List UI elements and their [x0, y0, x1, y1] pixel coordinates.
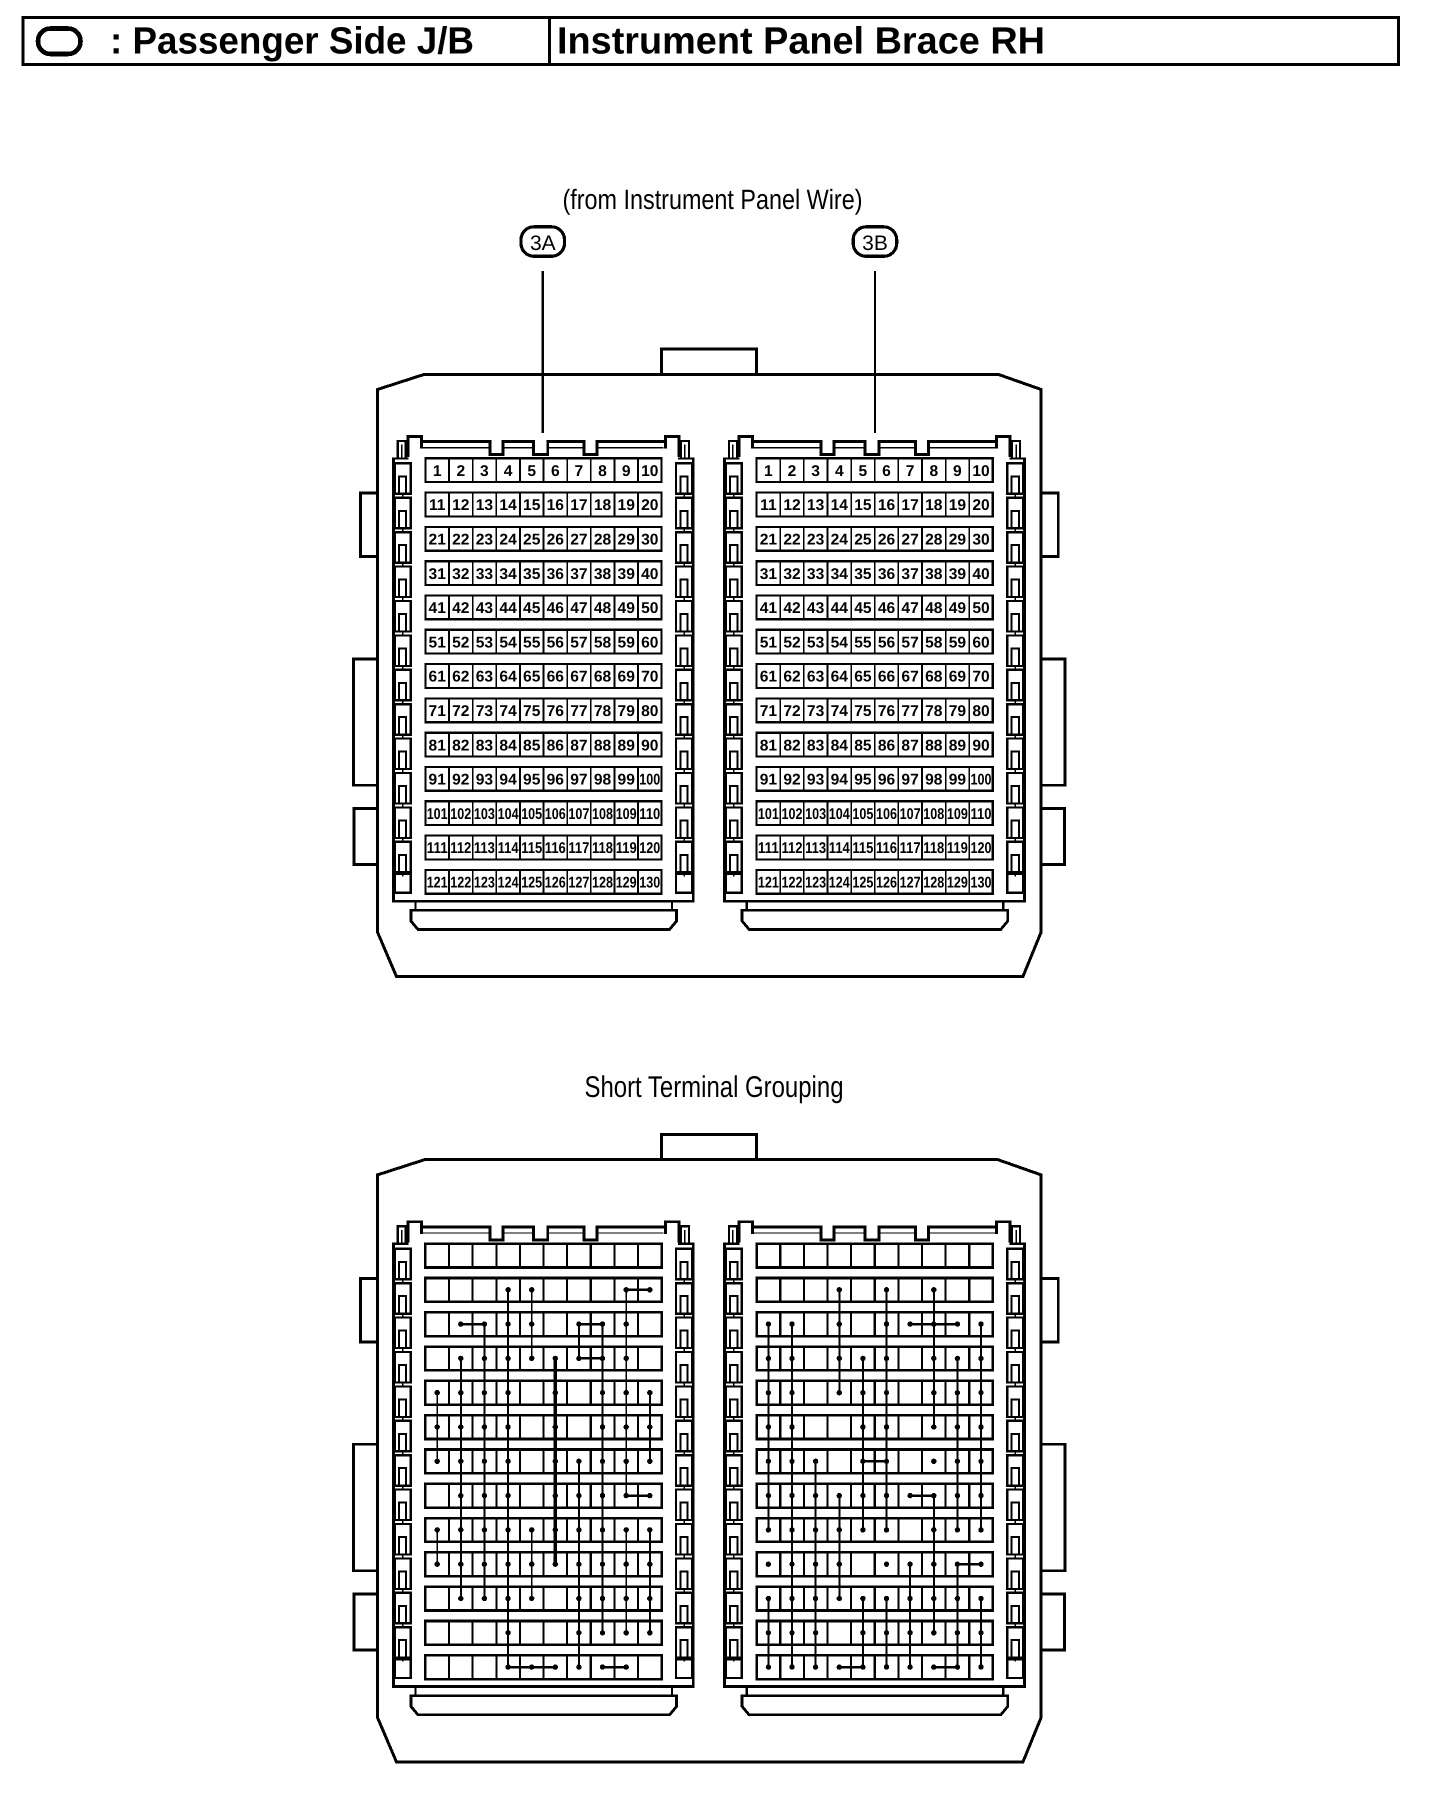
svg-text:109: 109 [947, 806, 968, 823]
svg-text:75: 75 [854, 703, 872, 720]
svg-text:46: 46 [878, 600, 896, 617]
svg-text:82: 82 [452, 737, 470, 754]
svg-text:81: 81 [429, 737, 447, 754]
svg-text:80: 80 [972, 703, 990, 720]
svg-text:49: 49 [949, 600, 967, 617]
svg-text:9: 9 [953, 463, 962, 480]
svg-text:55: 55 [854, 634, 872, 651]
svg-text:65: 65 [523, 669, 541, 686]
svg-text:94: 94 [499, 772, 517, 789]
svg-text:22: 22 [452, 532, 470, 549]
svg-text:30: 30 [972, 532, 990, 549]
svg-text:111: 111 [427, 840, 448, 857]
svg-text:83: 83 [807, 737, 825, 754]
svg-text:69: 69 [618, 669, 636, 686]
svg-text:71: 71 [760, 703, 778, 720]
svg-text:43: 43 [807, 600, 825, 617]
svg-text:82: 82 [783, 737, 801, 754]
svg-text:36: 36 [547, 566, 565, 583]
svg-text:32: 32 [452, 566, 470, 583]
svg-text:23: 23 [807, 532, 825, 549]
svg-text:31: 31 [429, 566, 447, 583]
svg-text:23: 23 [476, 532, 494, 549]
svg-text:50: 50 [972, 600, 990, 617]
svg-text:66: 66 [547, 669, 565, 686]
svg-text:13: 13 [476, 497, 494, 514]
svg-text:66: 66 [878, 669, 896, 686]
svg-text:62: 62 [783, 669, 801, 686]
svg-text:11: 11 [760, 497, 777, 514]
svg-text:88: 88 [594, 737, 612, 754]
svg-text:77: 77 [570, 703, 587, 720]
svg-text:79: 79 [618, 703, 636, 720]
svg-text:120: 120 [971, 840, 992, 857]
svg-text:98: 98 [594, 772, 612, 789]
svg-text:45: 45 [854, 600, 872, 617]
svg-text:40: 40 [641, 566, 659, 583]
svg-text:120: 120 [639, 840, 660, 857]
svg-text:70: 70 [641, 669, 659, 686]
svg-text:18: 18 [925, 497, 943, 514]
svg-text:96: 96 [878, 772, 896, 789]
svg-text:77: 77 [901, 703, 918, 720]
svg-text:67: 67 [901, 669, 918, 686]
svg-text:2: 2 [788, 463, 797, 480]
svg-text:100: 100 [639, 772, 660, 789]
svg-text:103: 103 [805, 806, 826, 823]
svg-text:67: 67 [570, 669, 587, 686]
svg-text:117: 117 [900, 840, 921, 857]
svg-text:25: 25 [523, 532, 541, 549]
svg-text:73: 73 [476, 703, 494, 720]
svg-text:128: 128 [592, 875, 613, 892]
svg-text:15: 15 [523, 497, 541, 514]
svg-text:22: 22 [783, 532, 801, 549]
svg-text:125: 125 [852, 875, 873, 892]
svg-text:Instrument Panel Brace RH: Instrument Panel Brace RH [557, 21, 1045, 63]
svg-text:39: 39 [618, 566, 636, 583]
svg-text:19: 19 [618, 497, 636, 514]
svg-text:55: 55 [523, 634, 541, 651]
svg-text:56: 56 [878, 634, 896, 651]
svg-text:123: 123 [805, 875, 826, 892]
svg-text:56: 56 [547, 634, 565, 651]
svg-text:54: 54 [831, 634, 849, 651]
svg-text:16: 16 [547, 497, 565, 514]
svg-text:2: 2 [456, 463, 465, 480]
svg-text:83: 83 [476, 737, 494, 754]
svg-text:103: 103 [474, 806, 495, 823]
svg-text:64: 64 [831, 669, 849, 686]
svg-text:26: 26 [547, 532, 565, 549]
svg-text:Short Terminal Grouping: Short Terminal Grouping [585, 1071, 844, 1104]
svg-text:116: 116 [876, 840, 897, 857]
svg-text:8: 8 [598, 463, 607, 480]
svg-text:122: 122 [782, 875, 803, 892]
svg-text:41: 41 [760, 600, 778, 617]
svg-text:48: 48 [594, 600, 612, 617]
svg-text:84: 84 [831, 737, 849, 754]
svg-text:128: 128 [923, 875, 944, 892]
svg-text:37: 37 [570, 566, 587, 583]
svg-text:126: 126 [876, 875, 897, 892]
svg-text:89: 89 [949, 737, 967, 754]
svg-text:(from Instrument Panel Wire): (from Instrument Panel Wire) [563, 184, 863, 215]
svg-text:118: 118 [592, 840, 613, 857]
svg-text:18: 18 [594, 497, 612, 514]
svg-text:114: 114 [498, 840, 519, 857]
svg-text:123: 123 [474, 875, 495, 892]
svg-text:28: 28 [594, 532, 612, 549]
svg-text:85: 85 [523, 737, 541, 754]
svg-text:71: 71 [429, 703, 447, 720]
svg-text:97: 97 [901, 772, 918, 789]
svg-text:3: 3 [811, 463, 820, 480]
svg-text:53: 53 [807, 634, 825, 651]
svg-text:31: 31 [760, 566, 778, 583]
svg-text:92: 92 [452, 772, 470, 789]
svg-text:8: 8 [929, 463, 938, 480]
svg-text:87: 87 [570, 737, 587, 754]
svg-text:68: 68 [594, 669, 612, 686]
svg-text:105: 105 [852, 806, 873, 823]
svg-text:24: 24 [499, 532, 517, 549]
svg-text:54: 54 [499, 634, 517, 651]
svg-text:101: 101 [427, 806, 448, 823]
svg-text:126: 126 [545, 875, 566, 892]
svg-text:80: 80 [641, 703, 659, 720]
svg-text:4: 4 [835, 463, 844, 480]
svg-text:102: 102 [450, 806, 471, 823]
svg-text:35: 35 [523, 566, 541, 583]
svg-text:129: 129 [616, 875, 637, 892]
svg-text:47: 47 [901, 600, 918, 617]
svg-text:29: 29 [618, 532, 636, 549]
svg-text:97: 97 [570, 772, 587, 789]
svg-text:86: 86 [878, 737, 896, 754]
svg-text:21: 21 [429, 532, 447, 549]
svg-text:108: 108 [923, 806, 944, 823]
svg-text:33: 33 [476, 566, 494, 583]
svg-text:10: 10 [972, 463, 990, 480]
svg-text:121: 121 [427, 875, 448, 892]
svg-text:90: 90 [641, 737, 659, 754]
svg-text:10: 10 [641, 463, 659, 480]
svg-text:95: 95 [523, 772, 541, 789]
svg-text:58: 58 [594, 634, 612, 651]
svg-text:110: 110 [639, 806, 660, 823]
svg-text:110: 110 [971, 806, 992, 823]
svg-text:115: 115 [521, 840, 542, 857]
svg-text:36: 36 [878, 566, 896, 583]
svg-text:13: 13 [807, 497, 825, 514]
svg-text:114: 114 [829, 840, 850, 857]
svg-text:20: 20 [641, 497, 659, 514]
svg-text:99: 99 [618, 772, 636, 789]
svg-text:27: 27 [901, 532, 918, 549]
svg-text:4: 4 [504, 463, 513, 480]
svg-text:53: 53 [476, 634, 494, 651]
svg-text:12: 12 [452, 497, 470, 514]
svg-text:3: 3 [480, 463, 489, 480]
svg-text:25: 25 [854, 532, 872, 549]
svg-text:60: 60 [641, 634, 659, 651]
svg-text:68: 68 [925, 669, 943, 686]
svg-text:15: 15 [854, 497, 872, 514]
svg-text:125: 125 [521, 875, 542, 892]
svg-text:104: 104 [829, 806, 850, 823]
svg-text:116: 116 [545, 840, 566, 857]
svg-text:106: 106 [876, 806, 897, 823]
svg-text:26: 26 [878, 532, 896, 549]
svg-text:119: 119 [947, 840, 968, 857]
svg-text:100: 100 [971, 772, 992, 789]
svg-text:39: 39 [949, 566, 967, 583]
svg-text:72: 72 [783, 703, 801, 720]
svg-text:93: 93 [807, 772, 825, 789]
svg-text:78: 78 [925, 703, 943, 720]
svg-text:111: 111 [758, 840, 779, 857]
svg-text:112: 112 [450, 840, 471, 857]
svg-text:85: 85 [854, 737, 872, 754]
svg-text:6: 6 [551, 463, 560, 480]
svg-text:43: 43 [476, 600, 494, 617]
svg-text:9: 9 [622, 463, 631, 480]
svg-text:24: 24 [831, 532, 849, 549]
svg-text:86: 86 [547, 737, 565, 754]
svg-text:127: 127 [568, 875, 589, 892]
svg-text:5: 5 [859, 463, 868, 480]
svg-text:72: 72 [452, 703, 470, 720]
svg-text:113: 113 [474, 840, 495, 857]
svg-text:73: 73 [807, 703, 825, 720]
svg-text:58: 58 [925, 634, 943, 651]
svg-text:91: 91 [429, 772, 447, 789]
svg-text:48: 48 [925, 600, 943, 617]
svg-text:99: 99 [949, 772, 967, 789]
svg-text:108: 108 [592, 806, 613, 823]
svg-text:84: 84 [499, 737, 517, 754]
svg-text:34: 34 [499, 566, 517, 583]
svg-text:16: 16 [878, 497, 896, 514]
svg-text:124: 124 [498, 875, 519, 892]
svg-text:76: 76 [878, 703, 896, 720]
svg-text:94: 94 [831, 772, 849, 789]
svg-text:74: 74 [499, 703, 517, 720]
svg-text:93: 93 [476, 772, 494, 789]
svg-text:69: 69 [949, 669, 967, 686]
svg-text:79: 79 [949, 703, 967, 720]
svg-text:115: 115 [852, 840, 873, 857]
svg-text:12: 12 [783, 497, 801, 514]
svg-text:34: 34 [831, 566, 849, 583]
svg-text:: Passenger Side J/B: : Passenger Side J/B [110, 21, 474, 63]
svg-text:78: 78 [594, 703, 612, 720]
svg-text:6: 6 [882, 463, 891, 480]
svg-text:44: 44 [499, 600, 517, 617]
svg-text:38: 38 [925, 566, 943, 583]
svg-text:51: 51 [429, 634, 447, 651]
svg-text:70: 70 [972, 669, 990, 686]
svg-text:1: 1 [433, 463, 442, 480]
svg-text:98: 98 [925, 772, 943, 789]
svg-text:107: 107 [900, 806, 921, 823]
svg-text:21: 21 [760, 532, 778, 549]
svg-text:101: 101 [758, 806, 779, 823]
svg-text:121: 121 [758, 875, 779, 892]
svg-text:1: 1 [764, 463, 773, 480]
svg-text:88: 88 [925, 737, 943, 754]
svg-text:107: 107 [568, 806, 589, 823]
svg-text:49: 49 [618, 600, 636, 617]
svg-text:74: 74 [831, 703, 849, 720]
svg-text:37: 37 [901, 566, 918, 583]
svg-text:40: 40 [972, 566, 990, 583]
svg-text:112: 112 [782, 840, 803, 857]
svg-text:119: 119 [616, 840, 637, 857]
svg-text:30: 30 [641, 532, 659, 549]
svg-text:20: 20 [972, 497, 990, 514]
svg-text:59: 59 [949, 634, 967, 651]
svg-text:92: 92 [783, 772, 801, 789]
svg-text:129: 129 [947, 875, 968, 892]
svg-text:63: 63 [807, 669, 825, 686]
svg-text:109: 109 [616, 806, 637, 823]
svg-text:52: 52 [783, 634, 801, 651]
svg-text:89: 89 [618, 737, 636, 754]
svg-text:61: 61 [760, 669, 778, 686]
svg-text:28: 28 [925, 532, 943, 549]
svg-text:91: 91 [760, 772, 778, 789]
svg-text:127: 127 [900, 875, 921, 892]
svg-text:117: 117 [568, 840, 589, 857]
svg-text:87: 87 [901, 737, 918, 754]
svg-text:38: 38 [594, 566, 612, 583]
svg-text:104: 104 [498, 806, 519, 823]
svg-text:57: 57 [570, 634, 587, 651]
svg-text:3A: 3A [530, 232, 556, 255]
svg-text:33: 33 [807, 566, 825, 583]
svg-text:113: 113 [805, 840, 826, 857]
svg-text:47: 47 [570, 600, 587, 617]
svg-text:76: 76 [547, 703, 565, 720]
svg-text:32: 32 [783, 566, 801, 583]
svg-text:14: 14 [499, 497, 517, 514]
svg-text:50: 50 [641, 600, 659, 617]
svg-text:124: 124 [829, 875, 850, 892]
svg-text:75: 75 [523, 703, 541, 720]
svg-text:45: 45 [523, 600, 541, 617]
svg-text:7: 7 [906, 463, 915, 480]
svg-text:42: 42 [452, 600, 470, 617]
svg-text:14: 14 [831, 497, 849, 514]
svg-text:5: 5 [527, 463, 536, 480]
svg-text:35: 35 [854, 566, 872, 583]
svg-text:59: 59 [618, 634, 636, 651]
svg-text:60: 60 [972, 634, 990, 651]
svg-text:61: 61 [429, 669, 447, 686]
svg-text:81: 81 [760, 737, 778, 754]
svg-text:46: 46 [547, 600, 565, 617]
svg-text:64: 64 [499, 669, 517, 686]
svg-text:7: 7 [575, 463, 584, 480]
svg-text:29: 29 [949, 532, 967, 549]
svg-text:130: 130 [639, 875, 660, 892]
svg-text:57: 57 [901, 634, 918, 651]
svg-text:95: 95 [854, 772, 872, 789]
svg-text:51: 51 [760, 634, 778, 651]
svg-text:96: 96 [547, 772, 565, 789]
svg-text:65: 65 [854, 669, 872, 686]
svg-text:52: 52 [452, 634, 470, 651]
svg-text:102: 102 [782, 806, 803, 823]
svg-text:11: 11 [429, 497, 446, 514]
svg-text:130: 130 [971, 875, 992, 892]
svg-text:62: 62 [452, 669, 470, 686]
svg-text:42: 42 [783, 600, 801, 617]
svg-text:106: 106 [545, 806, 566, 823]
svg-text:27: 27 [570, 532, 587, 549]
svg-text:122: 122 [450, 875, 471, 892]
svg-text:19: 19 [949, 497, 967, 514]
svg-text:63: 63 [476, 669, 494, 686]
svg-text:41: 41 [429, 600, 447, 617]
svg-text:3B: 3B [862, 232, 888, 255]
svg-text:17: 17 [901, 497, 918, 514]
svg-text:105: 105 [521, 806, 542, 823]
svg-text:17: 17 [570, 497, 587, 514]
svg-text:90: 90 [972, 737, 990, 754]
svg-text:44: 44 [831, 600, 849, 617]
svg-text:118: 118 [923, 840, 944, 857]
